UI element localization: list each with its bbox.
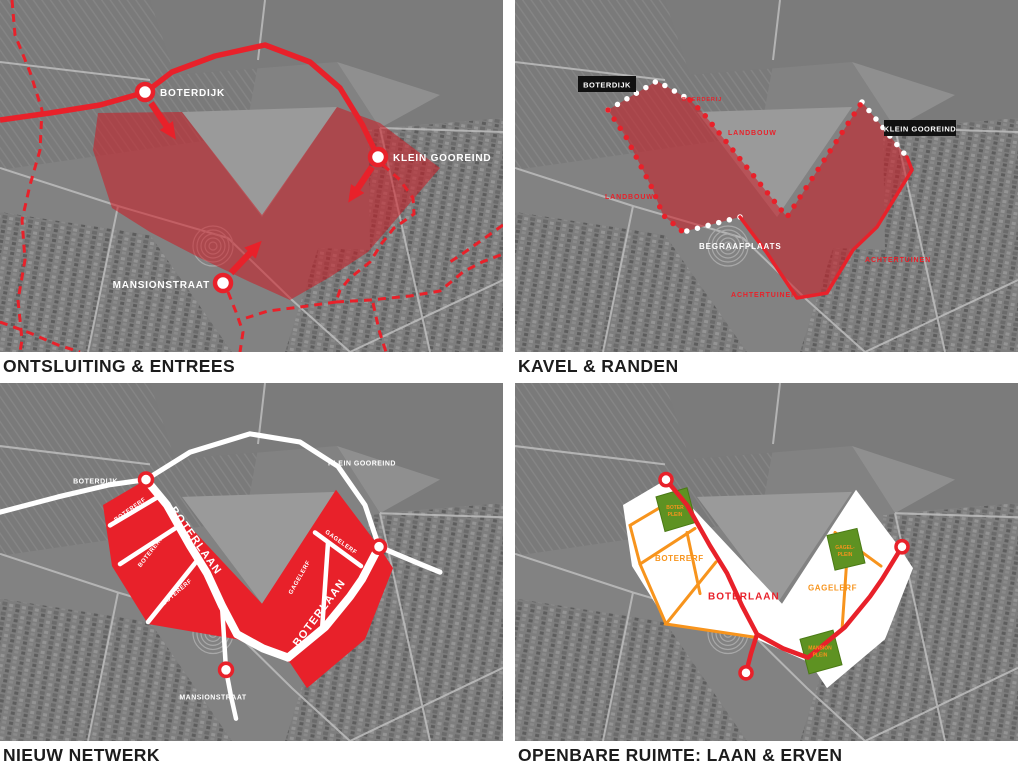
ontsluiting-diagram: BOTERDIJK KLEIN GOOREIND MANSIONSTRAAT bbox=[0, 0, 503, 352]
caption-kavel: KAVEL & RANDEN bbox=[518, 356, 679, 377]
panel-kavel: BOTERDIJK KLEIN GOOREIND BOERDERIJ LANDB… bbox=[515, 0, 1018, 352]
label-achtertuinen-right: ACHTERTUINEN bbox=[865, 257, 931, 264]
label-landbouw-left: LANDBOUW bbox=[605, 194, 654, 201]
label-gagel-plein-1: GAGEL- bbox=[835, 545, 855, 551]
kavel-diagram: BOTERDIJK KLEIN GOOREIND BOERDERIJ LANDB… bbox=[515, 0, 1018, 352]
caption-ontsluiting: ONTSLUITING & ENTREES bbox=[3, 356, 235, 377]
label-boterdijk: BOTERDIJK bbox=[160, 88, 225, 99]
label-mansion-plein-2: PLEIN bbox=[813, 653, 828, 659]
label-boterdijk: BOTERDIJK bbox=[73, 479, 118, 486]
panel-openbare-ruimte: BOTERERF GAGELERF BOTERLAAN BOTER PLEIN … bbox=[515, 383, 1018, 741]
label-boter-plein-2: PLEIN bbox=[668, 512, 683, 518]
panel-netwerk: BOTERDIJK KLEIN GOOREIND MANSIONSTRAAT B… bbox=[0, 383, 503, 741]
openbare-ruimte-diagram: BOTERERF GAGELERF BOTERLAAN BOTER PLEIN … bbox=[515, 383, 1018, 741]
caption-openbare: OPENBARE RUIMTE: LAAN & ERVEN bbox=[518, 745, 842, 766]
label-mansion-plein-1: MANSION bbox=[808, 645, 832, 651]
label-mansionstraat: MANSIONSTRAAT bbox=[179, 694, 246, 701]
label-mansionstraat: MANSIONSTRAAT bbox=[113, 280, 210, 291]
entry-node-boterdijk bbox=[137, 84, 153, 100]
label-boterdijk: BOTERDIJK bbox=[583, 81, 631, 90]
label-gagel-plein-2: PLEIN bbox=[838, 552, 853, 558]
node-klein-gooreind bbox=[373, 540, 386, 553]
node-klein-gooreind bbox=[896, 541, 908, 553]
label-botererf: BOTERERF bbox=[655, 554, 704, 563]
node-mansionstraat bbox=[740, 667, 752, 679]
panel-ontsluiting: BOTERDIJK KLEIN GOOREIND MANSIONSTRAAT bbox=[0, 0, 503, 352]
entry-node-klein-gooreind bbox=[370, 149, 386, 165]
label-achtertuinen-bottom: ACHTERTUINEN bbox=[731, 292, 797, 299]
netwerk-diagram: BOTERDIJK KLEIN GOOREIND MANSIONSTRAAT B… bbox=[0, 383, 503, 741]
node-mansionstraat bbox=[220, 663, 233, 676]
label-boter-plein-1: BOTER bbox=[666, 505, 684, 511]
label-klein-gooreind: KLEIN GOOREIND bbox=[393, 153, 491, 164]
label-begraafplaats: BEGRAAFPLAATS bbox=[699, 242, 782, 251]
node-boterdijk bbox=[660, 474, 672, 486]
label-boerderij: BOERDERIJ bbox=[682, 97, 722, 103]
label-gagelerf: GAGELERF bbox=[808, 583, 857, 592]
label-klein-gooreind: KLEIN GOOREIND bbox=[328, 460, 396, 467]
label-boterlaan: BOTERLAAN bbox=[708, 592, 780, 603]
caption-netwerk: NIEUW NETWERK bbox=[3, 745, 160, 766]
label-klein-gooreind: KLEIN GOOREIND bbox=[884, 125, 957, 134]
node-boterdijk bbox=[140, 473, 153, 486]
entry-node-mansionstraat bbox=[215, 275, 231, 291]
label-landbouw-top: LANDBOUW bbox=[728, 130, 777, 137]
